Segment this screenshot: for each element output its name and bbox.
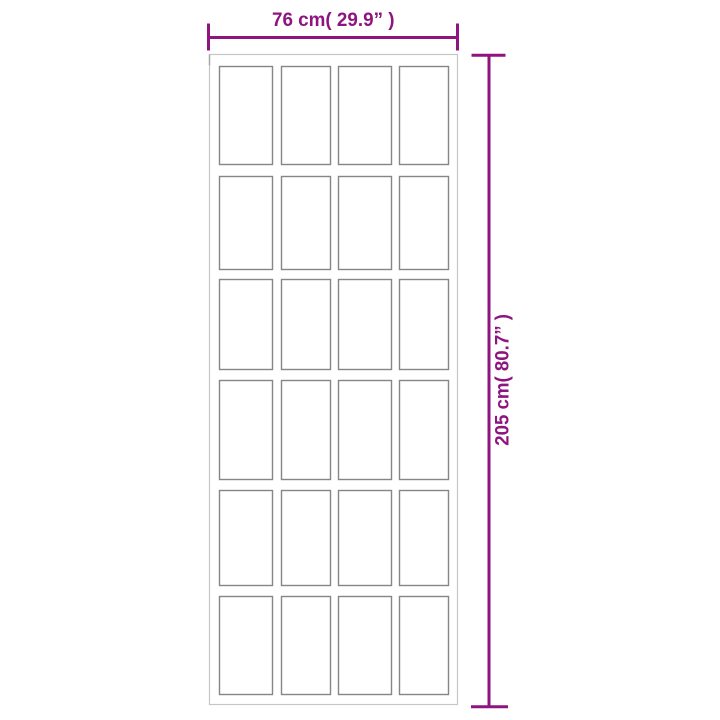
svg-text:205 cm( 80.7” ): 205 cm( 80.7” ) [493, 314, 514, 446]
svg-text:76 cm( 29.9” ): 76 cm( 29.9” ) [272, 10, 395, 31]
